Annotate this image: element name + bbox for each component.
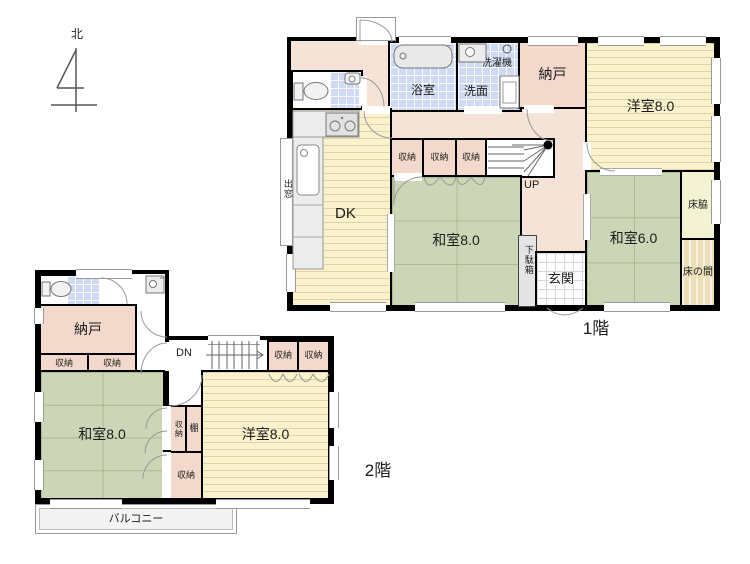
floor1-toilet-tile	[330, 72, 361, 108]
floor1-japanese-room-6: 和室6.0	[585, 170, 682, 307]
floor1-closet3-label: 収納	[462, 153, 480, 163]
compass-arrow-icon	[51, 48, 97, 112]
floor1-window-bath	[399, 36, 451, 46]
floor1-stairs-label: UP	[524, 179, 539, 191]
floor1-washroom-door-gap	[464, 106, 502, 114]
floor2-western-room: 洋室8.0	[201, 370, 330, 500]
floor1-caption: 1階	[566, 320, 626, 339]
floor2-storage-room: 納戸	[39, 304, 137, 355]
floor1-window-japanese6	[604, 302, 670, 312]
floor1-dk-door-gap	[362, 106, 390, 114]
floor1-fusuma-dk-japanese8	[387, 214, 395, 272]
floor1-entrance: 玄関	[535, 251, 587, 307]
floor1-toilet-door-gap	[359, 76, 367, 106]
floor2-shelf-label: 棚	[189, 424, 198, 434]
floor2-fusuma-gap-2	[162, 452, 171, 498]
floor1-western-room-label: 洋室8.0	[627, 99, 674, 114]
floor1-washing-machine-label: 洗濯機	[482, 58, 512, 69]
floor1-entrance-label: 玄関	[548, 272, 574, 286]
floor2-japanese-room8-label: 和室8.0	[78, 427, 125, 442]
floor1-window-east-2	[711, 116, 721, 162]
floor1-closet-3: 収納	[455, 138, 487, 177]
floor1-backdoor-alcove	[356, 17, 396, 41]
floor2-corridor-gap	[164, 342, 174, 371]
floor1-storage-room: 納戸	[518, 41, 587, 109]
floor1-japanese8-door-gap	[394, 173, 422, 181]
floor2-closet-c: 収納	[267, 340, 299, 372]
floor1-fusuma-western-japanese6	[600, 168, 662, 176]
floor2-closet-d: 収納	[297, 340, 330, 372]
floor1-western-room: 洋室8.0	[585, 41, 716, 172]
floor-plan: 北 浴室 洗面 洗濯機 納戸 洋室8.0 DK 出窓 収納 収納 収納 UP 和…	[0, 0, 750, 564]
floor1-closet-2: 収納	[422, 138, 457, 177]
compass-north-label: 北	[62, 28, 92, 41]
floor1-bathroom: 浴室	[388, 41, 458, 112]
floor2-fusuma-gap-1	[162, 406, 171, 450]
floor1-window-east-3	[711, 180, 721, 224]
floor2-window-stairs	[208, 335, 260, 345]
floor1-window-west	[286, 254, 296, 292]
floor2-closet-c-label: 収納	[274, 351, 292, 361]
floor2-closet-d-label: 収納	[304, 351, 322, 361]
floor1-window-japanese8	[415, 302, 505, 312]
floor2-window-north	[76, 269, 132, 279]
floor2-closet-a-label: 収納	[55, 359, 73, 369]
floor1-dk-label: DK	[335, 206, 356, 223]
floor2-toilet-door-gap	[99, 278, 107, 304]
floor2-closet-bottom: 収納	[169, 451, 203, 500]
floor1-window-storage	[528, 36, 578, 46]
floor2-window-south-2	[216, 499, 310, 509]
floor1-storage-door-gap	[524, 105, 554, 113]
floor2-window-storage	[34, 308, 44, 324]
floor1-window-western-2	[660, 36, 706, 46]
floor2-closet-mid-label: 収納	[174, 420, 183, 438]
floor1-toilet-room	[291, 70, 363, 110]
floor1-tokonoma: 床の間	[680, 238, 716, 307]
floor1-closet2-label: 収納	[430, 153, 448, 163]
floor2-western-room-label: 洋室8.0	[242, 427, 289, 442]
floor1-washroom-label: 洗面	[464, 85, 488, 98]
floor1-bay-window-label: 出窓	[282, 179, 292, 199]
floor2-stairs-label: DN	[176, 347, 192, 359]
floor1-tokonoma-label: 床の間	[683, 267, 713, 278]
floor1-shoe-cabinet-label: 下駄箱	[523, 245, 533, 275]
floor1-western-door-gap	[583, 142, 591, 170]
floor1-window-western-1	[598, 36, 644, 46]
floor2-window-west-2	[34, 460, 44, 490]
floor2-storage-label: 納戸	[74, 322, 102, 337]
floor1-washroom: 洗面 洗濯機	[456, 41, 522, 112]
floor1-japanese-room-8: 和室8.0	[390, 175, 522, 307]
floor1-bay-window: 出窓	[280, 138, 293, 246]
floor2-window-east-2	[329, 446, 339, 480]
floor2-toilet-tile	[67, 276, 101, 304]
floor1-staircase	[485, 138, 555, 178]
floor1-closet1-label: 収納	[398, 153, 416, 163]
floor2-window-south-1	[50, 499, 122, 509]
floor2-balcony-label: バルコニー	[36, 513, 236, 525]
floor1-japanese-room6-label: 和室6.0	[610, 231, 657, 246]
floor2-shelf: 棚	[185, 405, 203, 453]
floor1-dk-room: DK	[291, 108, 392, 307]
floor1-window-east-1	[711, 58, 721, 104]
floor2-window-east-1	[329, 392, 339, 428]
floor1-japanese-room8-label: 和室8.0	[432, 233, 479, 248]
floor1-bathroom-label: 浴室	[411, 84, 435, 97]
floor1-fusuma-hall-japanese6	[583, 194, 591, 240]
floor2-caption: 2階	[348, 462, 408, 481]
floor1-storage-label: 納戸	[539, 67, 567, 82]
floor2-closet-b-label: 収納	[103, 359, 121, 369]
floor1-closet-1: 収納	[390, 138, 424, 177]
floor2-japanese-room-8: 和室8.0	[39, 370, 165, 500]
floor2-window-west-1	[34, 392, 44, 422]
floor1-window-dk	[330, 302, 386, 312]
floor1-tokowaki-label: 床脇	[688, 200, 708, 211]
floor2-closet-bottom-label: 収納	[177, 471, 195, 481]
